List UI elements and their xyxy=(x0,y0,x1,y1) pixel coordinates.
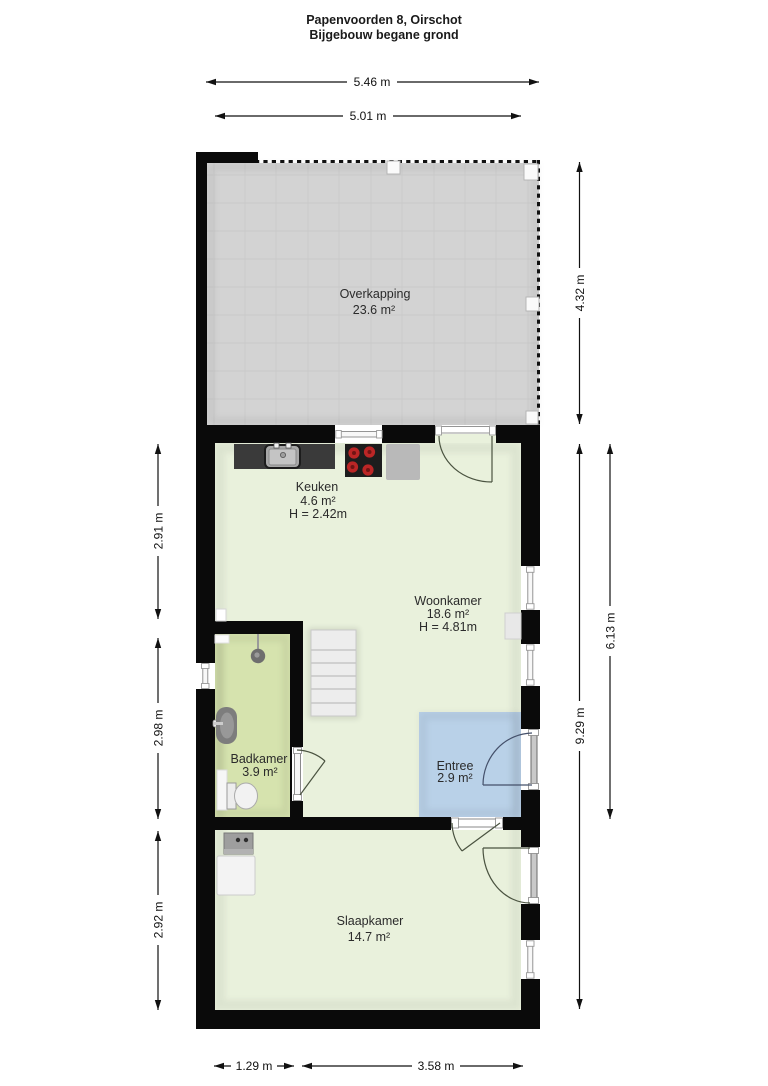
svg-text:6.13 m: 6.13 m xyxy=(604,613,618,650)
svg-text:4.32 m: 4.32 m xyxy=(573,275,587,312)
svg-text:Keuken: Keuken xyxy=(296,480,338,494)
svg-text:9.29 m: 9.29 m xyxy=(573,708,587,745)
svg-text:18.6 m²: 18.6 m² xyxy=(427,607,469,621)
svg-text:Papenvoorden 8, Oirschot: Papenvoorden 8, Oirschot xyxy=(306,13,462,27)
svg-text:Badkamer: Badkamer xyxy=(231,752,288,766)
svg-text:H = 4.81m: H = 4.81m xyxy=(419,620,477,634)
svg-text:5.46 m: 5.46 m xyxy=(354,75,391,89)
svg-text:2.98 m: 2.98 m xyxy=(152,710,166,747)
svg-text:Woonkamer: Woonkamer xyxy=(414,594,481,608)
svg-text:2.92 m: 2.92 m xyxy=(152,902,166,939)
svg-text:3.9 m²: 3.9 m² xyxy=(242,765,277,779)
svg-text:4.6 m²: 4.6 m² xyxy=(300,494,335,508)
svg-text:14.7 m²: 14.7 m² xyxy=(348,930,390,944)
svg-text:2.91 m: 2.91 m xyxy=(152,513,166,550)
svg-text:Overkapping: Overkapping xyxy=(340,287,411,301)
svg-text:Bijgebouw begane grond: Bijgebouw begane grond xyxy=(309,28,458,42)
svg-text:H = 2.42m: H = 2.42m xyxy=(289,507,347,521)
svg-text:2.9 m²: 2.9 m² xyxy=(437,771,472,785)
svg-text:Slaapkamer: Slaapkamer xyxy=(337,914,404,928)
svg-text:1.29 m: 1.29 m xyxy=(236,1059,273,1073)
svg-text:23.6 m²: 23.6 m² xyxy=(353,303,395,317)
svg-text:3.58 m: 3.58 m xyxy=(418,1059,455,1073)
svg-text:5.01 m: 5.01 m xyxy=(350,109,387,123)
